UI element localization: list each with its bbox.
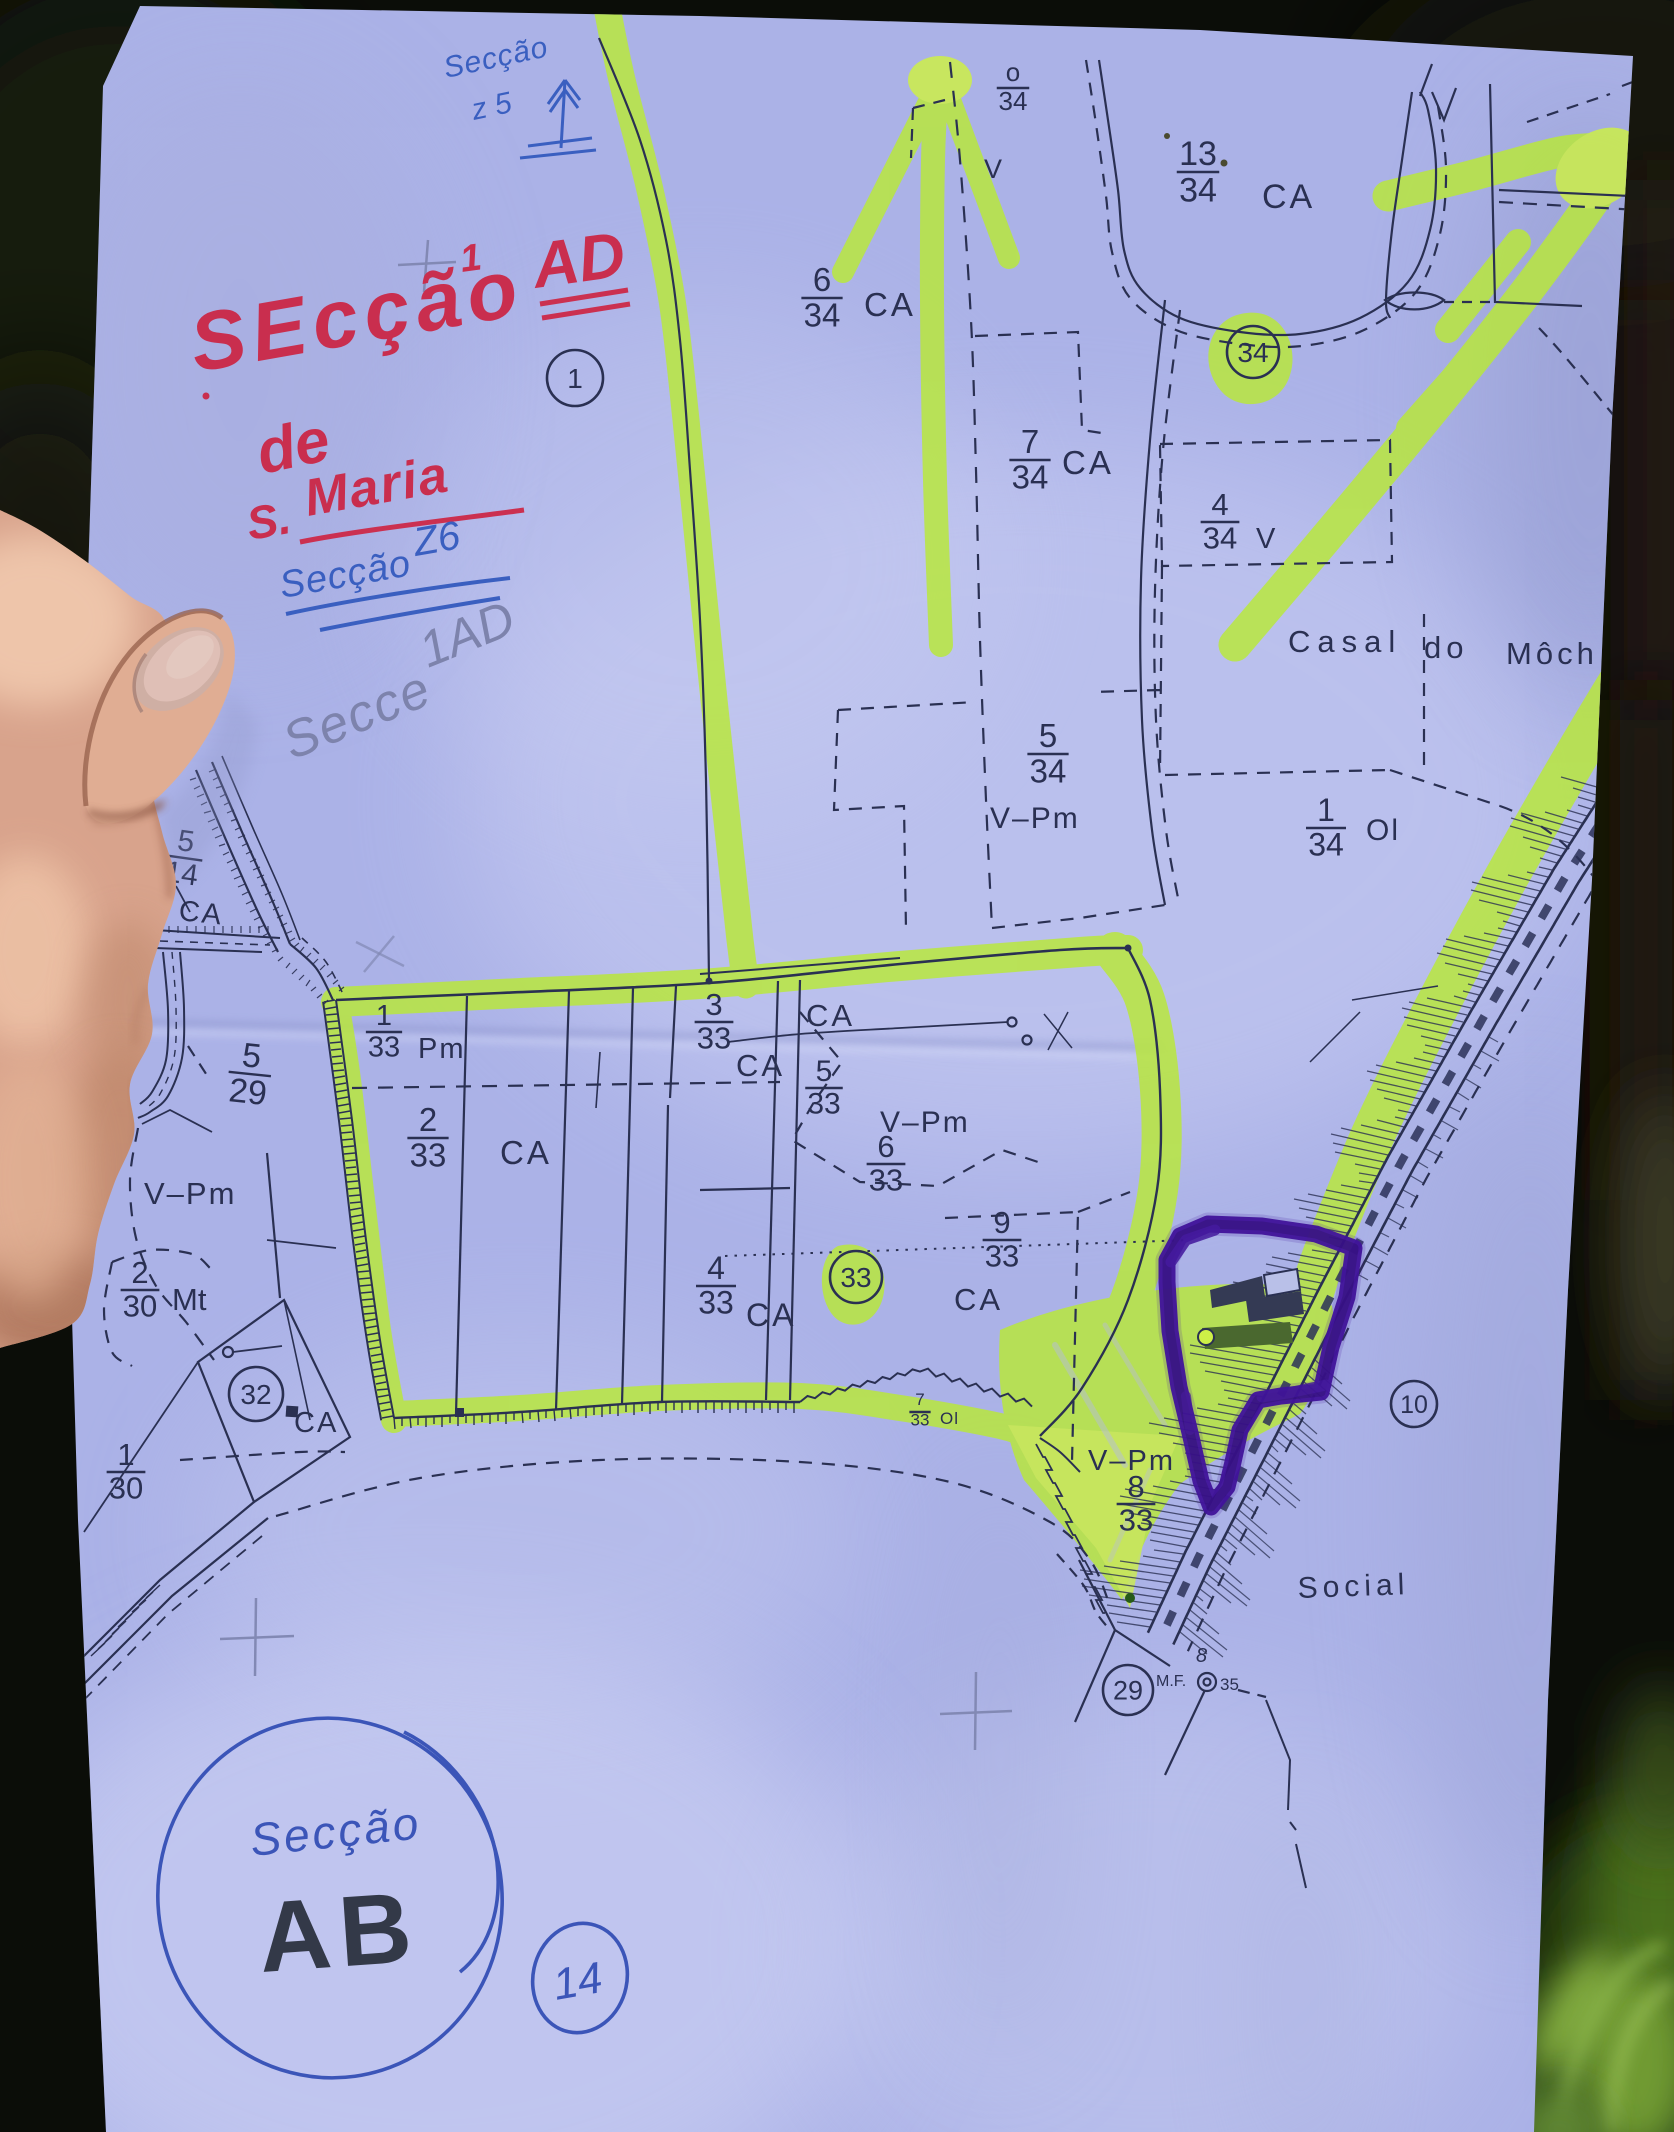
svg-text:1: 1	[567, 363, 583, 394]
svg-text:3: 3	[705, 987, 722, 1022]
svg-text:33: 33	[410, 1136, 447, 1173]
svg-text:Social: Social	[1297, 1568, 1410, 1605]
svg-text:S.: S.	[243, 491, 295, 550]
svg-text:6: 6	[877, 1129, 894, 1164]
svg-text:1: 1	[376, 1000, 392, 1032]
svg-text:CA: CA	[864, 286, 916, 323]
svg-text:AB: AB	[255, 1871, 423, 1994]
svg-text:29: 29	[1113, 1676, 1143, 1706]
svg-text:4: 4	[707, 1250, 725, 1286]
svg-text:8: 8	[1196, 1645, 1207, 1667]
svg-text:32: 32	[240, 1379, 271, 1410]
svg-text:33: 33	[840, 1262, 871, 1293]
svg-text:33: 33	[869, 1163, 903, 1198]
svg-text:34: 34	[1203, 521, 1237, 556]
svg-text:30: 30	[109, 1471, 143, 1506]
svg-text:5: 5	[1039, 717, 1057, 754]
svg-text:Casal: Casal	[1288, 624, 1402, 659]
svg-text:AD: AD	[526, 218, 630, 302]
svg-text:CA: CA	[500, 1134, 552, 1171]
svg-text:4: 4	[1211, 487, 1228, 522]
svg-text:34: 34	[1308, 826, 1344, 862]
svg-text:CA: CA	[746, 1297, 796, 1333]
svg-text:33: 33	[697, 1021, 731, 1056]
svg-text:33: 33	[807, 1088, 840, 1121]
svg-text:34: 34	[1012, 458, 1049, 495]
svg-text:CA: CA	[806, 998, 855, 1033]
svg-text:V: V	[1256, 523, 1276, 555]
svg-text:V–Pm: V–Pm	[990, 802, 1080, 835]
svg-text:V: V	[984, 154, 1002, 184]
svg-text:Môch: Môch	[1506, 636, 1598, 671]
svg-text:33: 33	[368, 1032, 400, 1064]
svg-text:Pm: Pm	[418, 1033, 466, 1065]
svg-text:Ol: Ol	[1366, 814, 1400, 847]
svg-text:CA: CA	[1262, 178, 1315, 216]
svg-text:30: 30	[123, 1289, 157, 1324]
svg-text:33: 33	[698, 1284, 734, 1320]
svg-text:CA: CA	[1062, 444, 1114, 481]
svg-text:CA: CA	[294, 1407, 338, 1439]
svg-text:Mt: Mt	[172, 1282, 207, 1317]
svg-text:M.F.: M.F.	[1156, 1673, 1186, 1690]
svg-text:33: 33	[1119, 1503, 1153, 1538]
svg-text:CA: CA	[177, 895, 224, 931]
svg-text:34: 34	[1237, 337, 1268, 368]
svg-text:CA: CA	[736, 1048, 785, 1083]
svg-text:34: 34	[804, 296, 841, 333]
svg-text:2: 2	[419, 1101, 437, 1138]
svg-text:o: o	[1006, 57, 1020, 87]
svg-text:34: 34	[999, 86, 1028, 116]
svg-text:29: 29	[227, 1071, 269, 1113]
svg-text:1: 1	[1317, 792, 1335, 828]
svg-text:Ol: Ol	[940, 1409, 959, 1428]
svg-text:34: 34	[1179, 171, 1217, 209]
svg-text:10: 10	[1400, 1391, 1428, 1419]
svg-text:7: 7	[915, 1390, 924, 1409]
svg-text:2: 2	[131, 1255, 148, 1290]
svg-text:9: 9	[993, 1205, 1010, 1240]
svg-text:14: 14	[549, 1953, 606, 2010]
svg-text:Z6: Z6	[409, 513, 464, 565]
svg-text:33: 33	[985, 1239, 1019, 1274]
svg-text:35: 35	[1220, 1675, 1239, 1694]
svg-text:5: 5	[816, 1055, 833, 1088]
svg-text:34: 34	[1030, 752, 1067, 789]
svg-text:13: 13	[1179, 135, 1217, 173]
svg-text:7: 7	[1021, 423, 1039, 460]
svg-text:5: 5	[240, 1036, 263, 1076]
svg-text:8: 8	[1127, 1469, 1144, 1504]
svg-text:do: do	[1424, 630, 1468, 665]
svg-text:33: 33	[911, 1411, 930, 1430]
svg-text:V–Pm: V–Pm	[144, 1176, 236, 1211]
svg-text:CA: CA	[954, 1282, 1003, 1317]
svg-text:6: 6	[813, 261, 831, 298]
svg-text:1: 1	[117, 1437, 134, 1472]
